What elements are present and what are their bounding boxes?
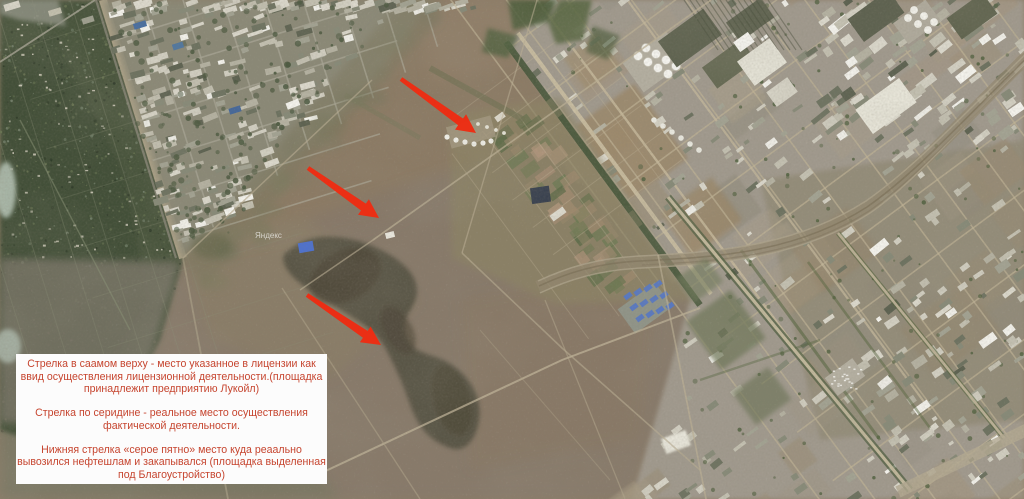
svg-text:Яндекс: Яндекс [255, 231, 282, 240]
